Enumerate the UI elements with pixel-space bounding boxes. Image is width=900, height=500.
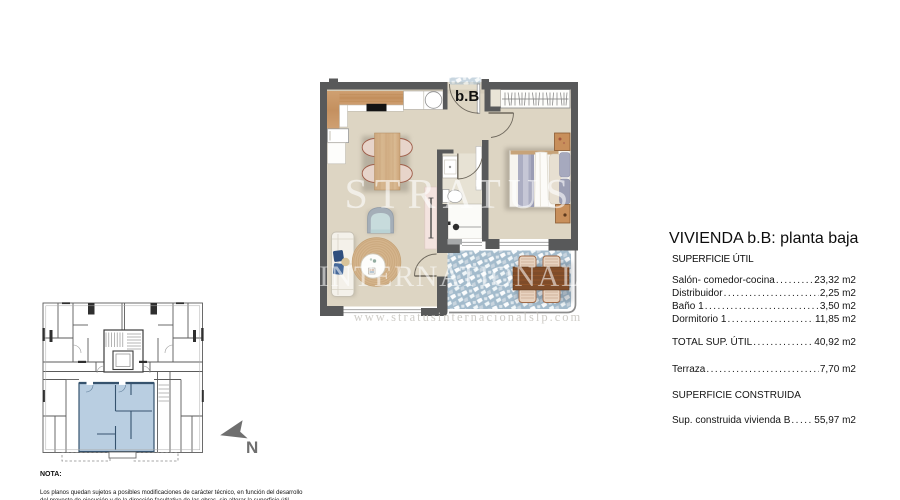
svg-text:N: N	[246, 438, 258, 457]
svg-text:b.B: b.B	[455, 88, 479, 105]
